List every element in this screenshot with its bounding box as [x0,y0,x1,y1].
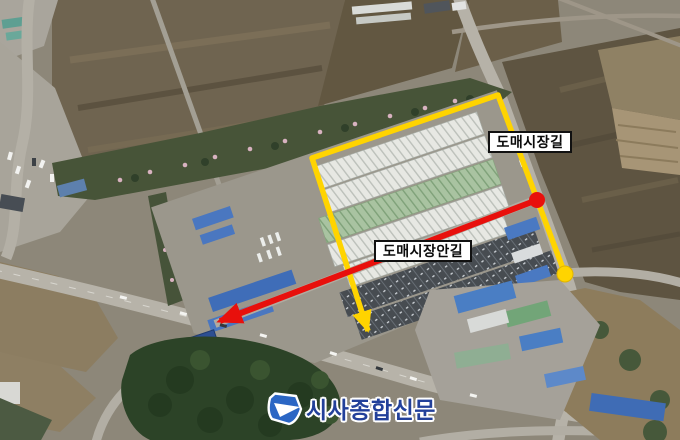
yellow-endpoint-marker [557,266,573,282]
news-map-image: 도매시장길 도매시장안길 시사종합신문 [0,0,680,440]
road-label-outer: 도매시장길 [488,131,572,153]
satellite-map [0,0,680,440]
road-label-inner: 도매시장안길 [374,240,472,262]
newspaper-logo-icon [263,389,303,427]
red-endpoint-marker [529,192,545,208]
publisher-name: 시사종합신문 [306,391,436,425]
publisher-watermark: 시사종합신문 [263,389,436,427]
